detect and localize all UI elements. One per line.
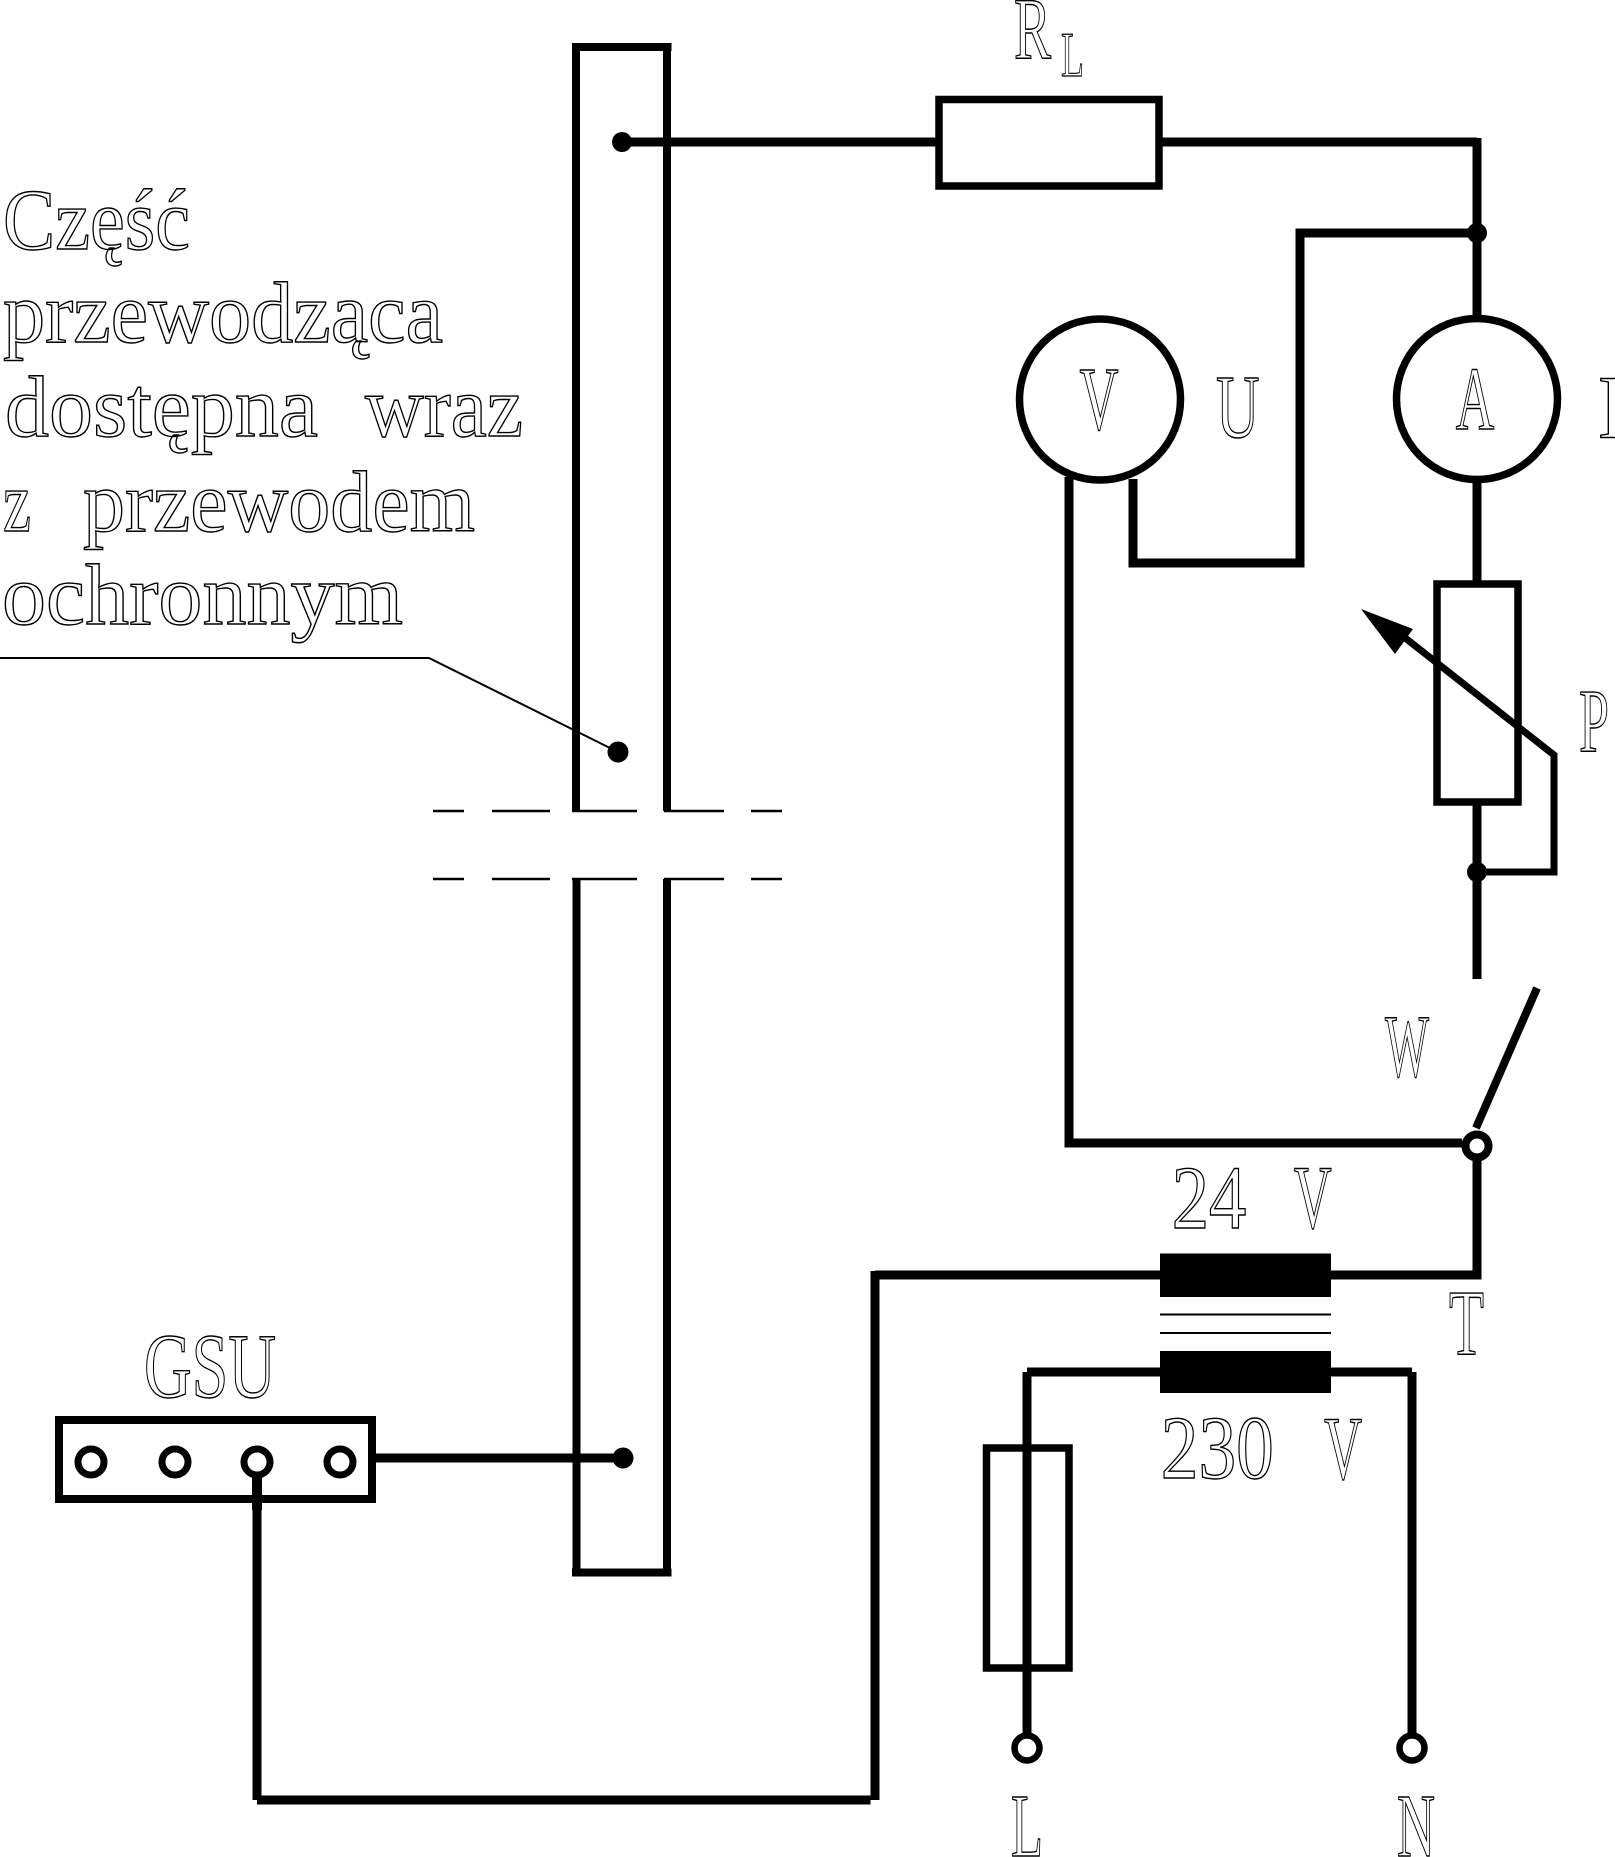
svg-text:dostępna: dostępna xyxy=(5,358,318,455)
svg-text:Część: Część xyxy=(3,171,190,268)
svg-text:przewodząca: przewodząca xyxy=(3,264,443,361)
svg-text:V: V xyxy=(1080,350,1119,449)
svg-text:ochronnym: ochronnym xyxy=(2,546,403,643)
svg-text:z: z xyxy=(3,453,31,550)
svg-text:I: I xyxy=(1598,359,1615,458)
svg-text:24: 24 xyxy=(1172,1149,1247,1248)
svg-text:L: L xyxy=(1011,1777,1043,1857)
svg-text:T: T xyxy=(1449,1272,1484,1375)
svg-text:230: 230 xyxy=(1161,1399,1274,1498)
svg-text:R: R xyxy=(1014,0,1051,79)
svg-text:przewodem: przewodem xyxy=(83,453,475,550)
svg-text:V: V xyxy=(1294,1149,1332,1248)
svg-text:A: A xyxy=(1456,350,1495,449)
svg-text:W: W xyxy=(1385,998,1429,1096)
svg-text:P: P xyxy=(1579,672,1609,771)
svg-text:L: L xyxy=(1061,19,1084,90)
svg-text:N: N xyxy=(1397,1777,1435,1857)
svg-text:GSU: GSU xyxy=(144,1315,276,1417)
svg-text:wraz: wraz xyxy=(365,358,523,455)
svg-text:U: U xyxy=(1216,358,1260,457)
svg-text:V: V xyxy=(1324,1400,1362,1499)
